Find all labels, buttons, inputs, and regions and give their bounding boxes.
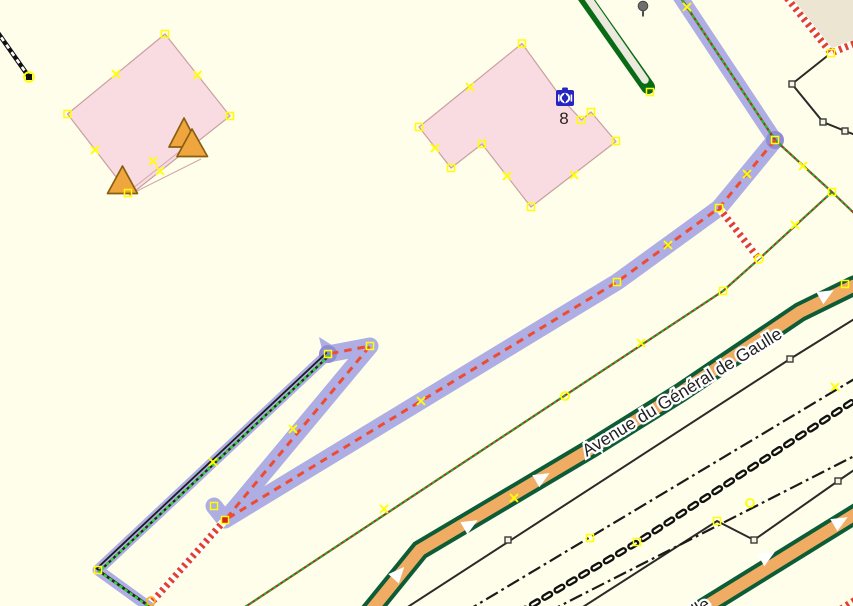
svg-text:8: 8 xyxy=(559,109,568,128)
